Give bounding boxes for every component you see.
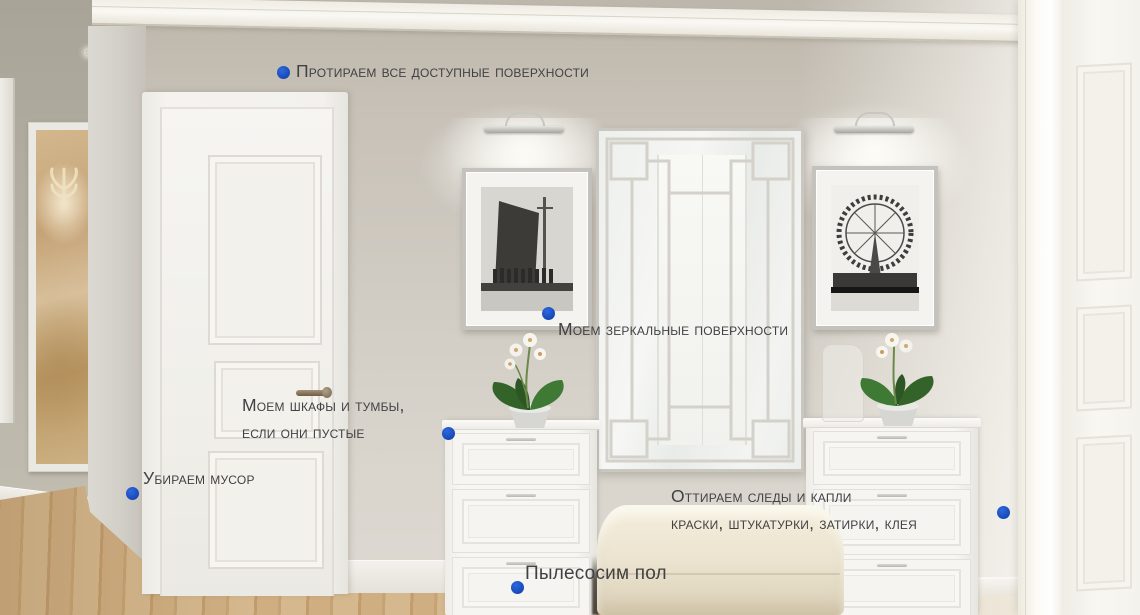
annotations-layer: Протираем все доступные поверхности Моем… bbox=[0, 0, 1140, 615]
annotation-line: Моем зеркальные поверхности bbox=[558, 316, 788, 343]
annotation-label-remove-stains: Оттираем следы и капли краски, штукатурк… bbox=[671, 483, 917, 537]
annotation-dot-remove-stains[interactable] bbox=[997, 506, 1010, 519]
annotation-label-remove-trash: Убираем мусор bbox=[143, 465, 255, 492]
annotation-line: Оттираем следы и капли bbox=[671, 483, 917, 510]
annotation-label-clean-mirrors: Моем зеркальные поверхности bbox=[558, 316, 788, 343]
annotation-dot-vacuum-floor[interactable] bbox=[511, 581, 524, 594]
annotation-label-wipe-surfaces: Протираем все доступные поверхности bbox=[296, 58, 589, 85]
annotation-line: Убираем мусор bbox=[143, 465, 255, 492]
annotation-line: краски, штукатурки, затирки, клея bbox=[671, 510, 917, 537]
annotation-line: Моем шкафы и тумбы, bbox=[242, 392, 405, 419]
annotation-dot-clean-mirrors[interactable] bbox=[542, 307, 555, 320]
annotation-label-clean-cabinets: Моем шкафы и тумбы, если они пустые bbox=[242, 392, 405, 446]
annotation-line: Протираем все доступные поверхности bbox=[296, 58, 589, 85]
interior-annotated-scene: Протираем все доступные поверхности Моем… bbox=[0, 0, 1140, 615]
annotation-line: Пылесосим пол bbox=[525, 561, 667, 587]
annotation-label-vacuum-floor: Пылесосим пол bbox=[525, 561, 667, 587]
annotation-line: если они пустые bbox=[242, 419, 405, 446]
annotation-dot-wipe-surfaces[interactable] bbox=[277, 66, 290, 79]
annotation-dot-remove-trash[interactable] bbox=[126, 487, 139, 500]
annotation-dot-clean-cabinets[interactable] bbox=[442, 427, 455, 440]
